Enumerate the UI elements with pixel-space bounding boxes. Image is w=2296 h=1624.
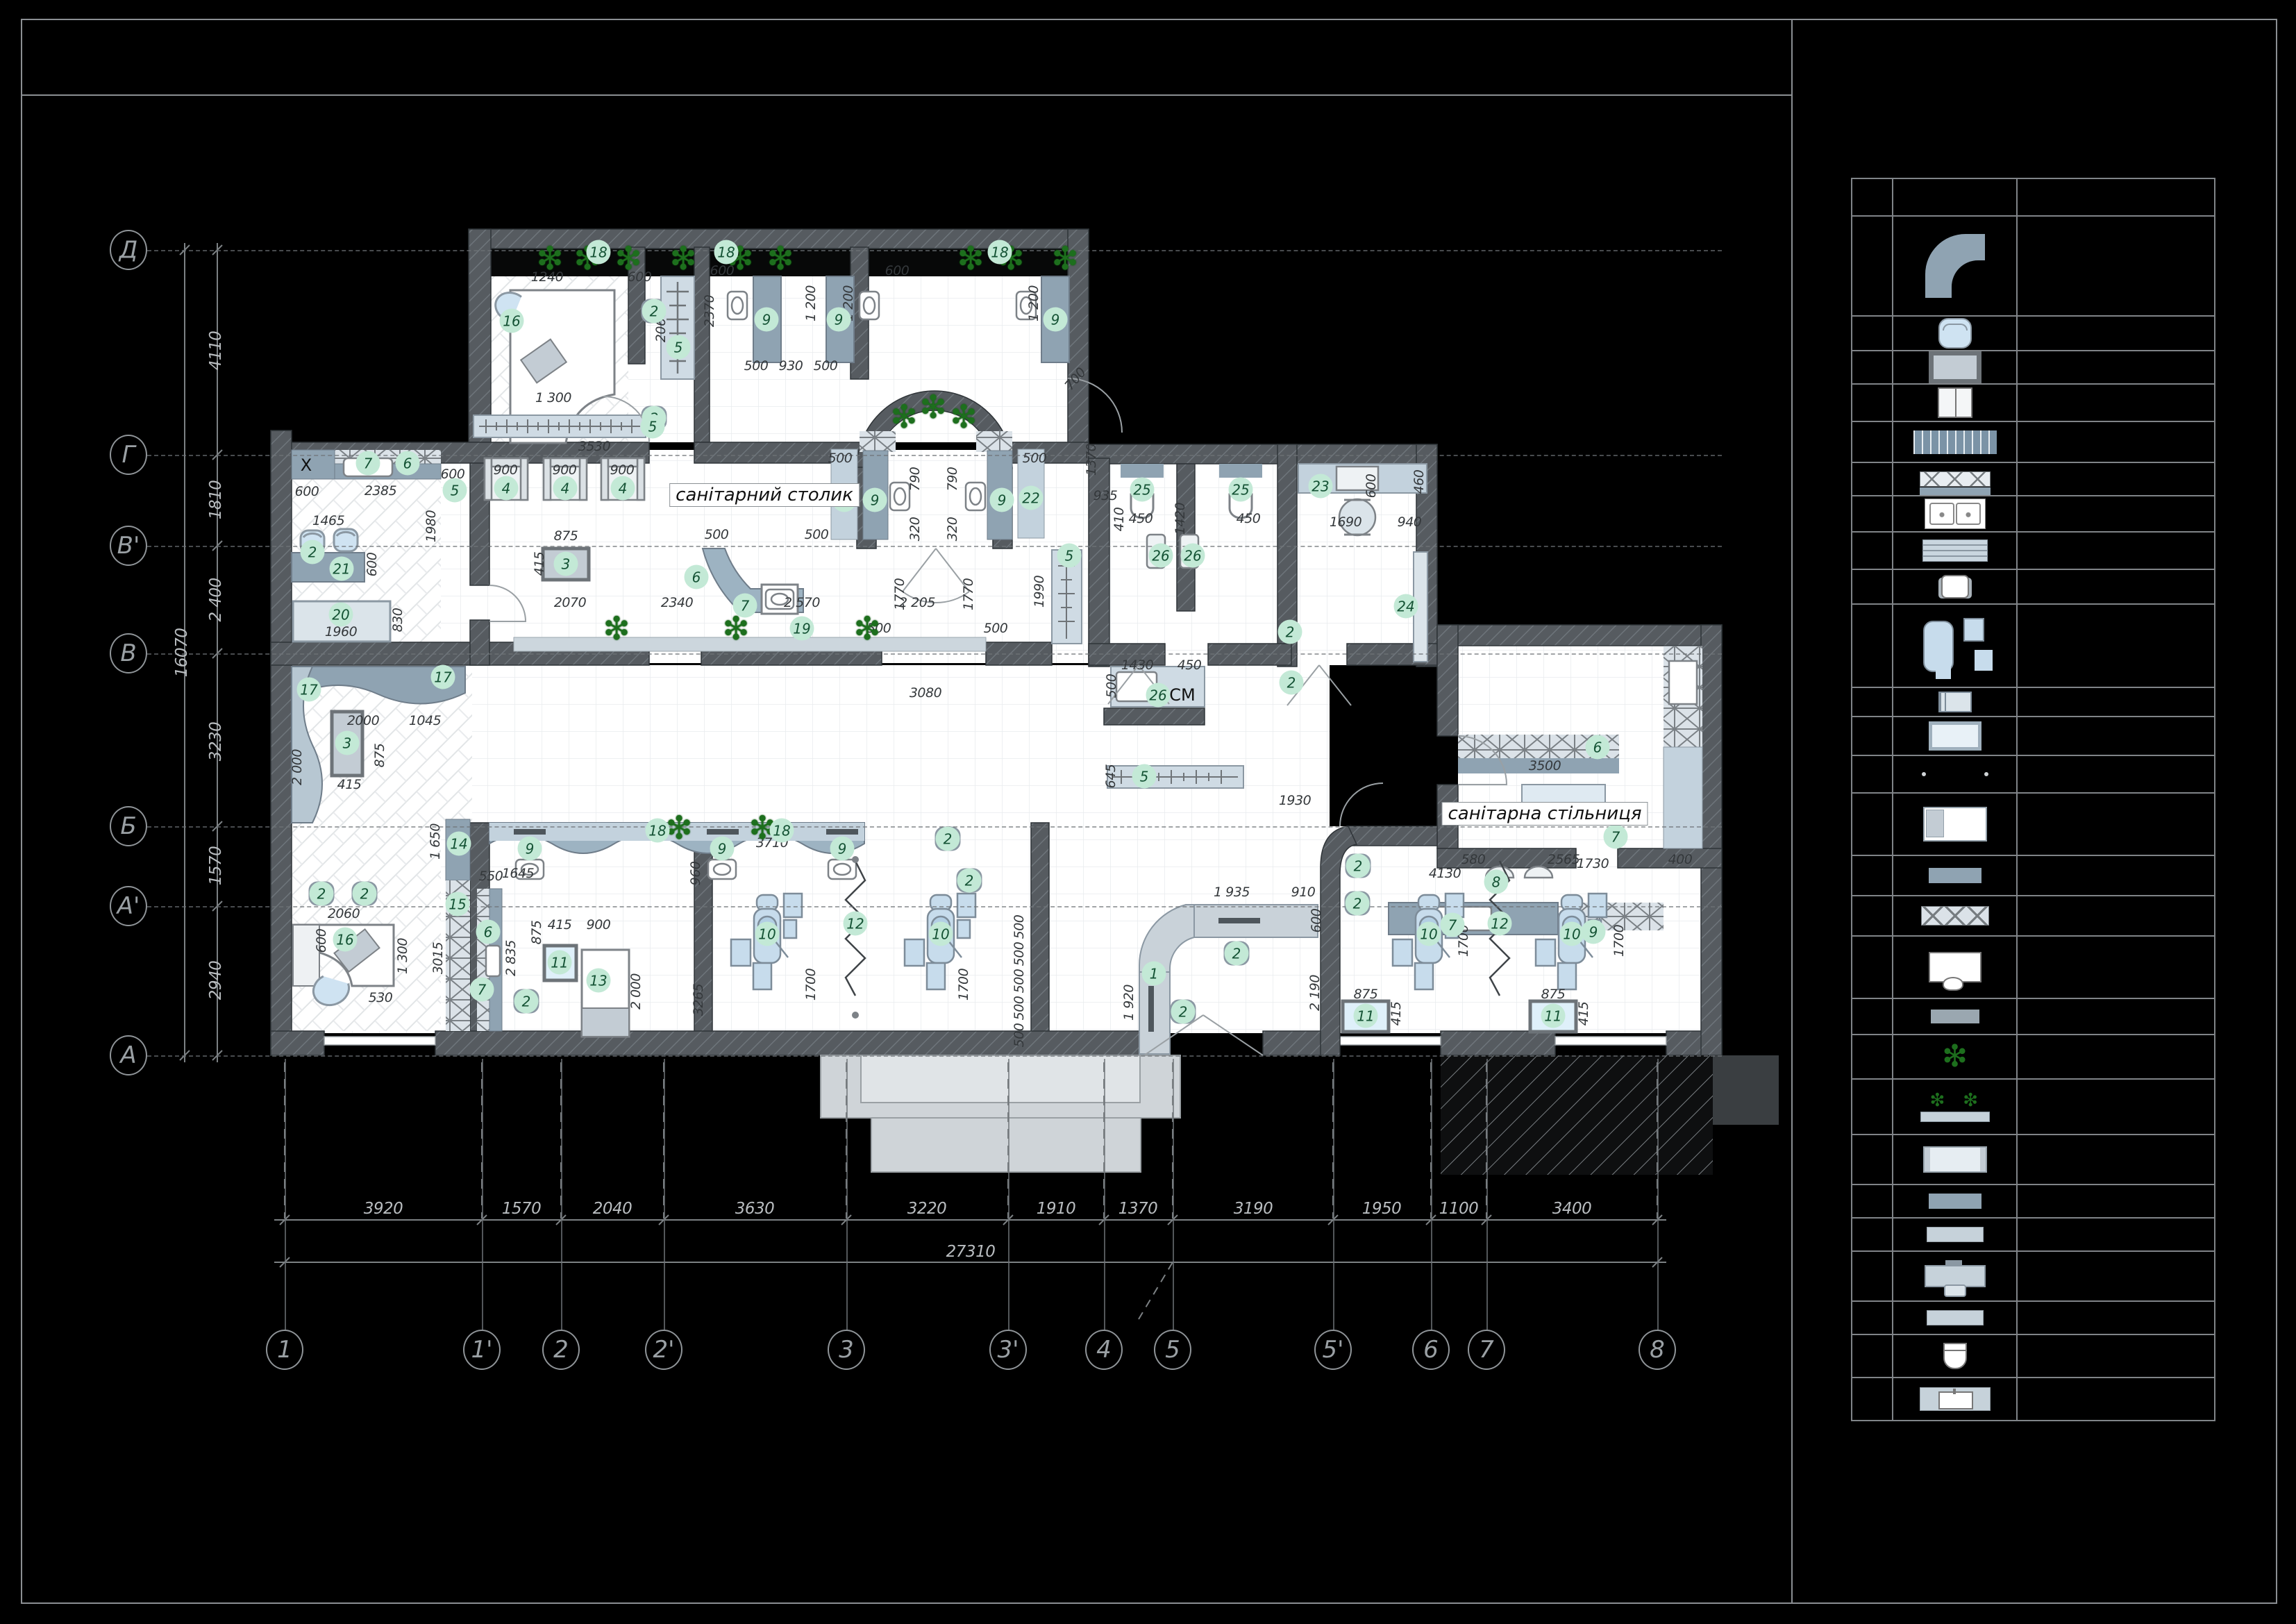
dimension-text: 500 — [1104, 674, 1119, 698]
plant-icon: ❇ — [1052, 242, 1079, 274]
axis-bubble: В' — [110, 526, 147, 566]
dimension-text: 415 — [532, 552, 547, 576]
axis-bubble: Д — [110, 230, 147, 270]
axis-bubble: А — [110, 1035, 147, 1075]
item-number-marker: 9 — [1582, 920, 1606, 944]
legend-symbol-cell — [1892, 999, 2016, 1034]
dimension-text: 500 — [814, 358, 838, 374]
dimension-text: 2060 — [328, 906, 360, 921]
dimension-text: 1 200 — [803, 285, 819, 321]
dimension-text: 1770 — [961, 578, 976, 610]
item-number-marker: 18 — [646, 819, 670, 843]
legend-row — [1852, 895, 2214, 935]
furniture-symbol-icon — [1923, 1146, 1987, 1173]
dimension-text: 4130 — [1429, 866, 1461, 881]
item-number-marker: 2 — [642, 299, 667, 324]
dimension-text: 1100 — [1439, 1200, 1479, 1218]
dimension-text: 27310 — [946, 1243, 996, 1261]
legend-row — [1852, 1078, 2214, 1134]
legend-symbol-cell — [1892, 422, 2016, 462]
dimension-text: 2040 — [593, 1200, 632, 1218]
item-number-marker: 2 — [1278, 620, 1302, 644]
dimension-text: 3265 — [691, 984, 706, 1016]
dimension-text: 500 — [1023, 451, 1047, 466]
legend-number-cell — [1852, 1302, 1892, 1334]
dimension-text: 3400 — [1552, 1200, 1592, 1218]
dimension-text: 600 — [364, 553, 380, 577]
legend-number-cell — [1852, 794, 1892, 855]
item-number-marker: 21 — [330, 557, 354, 581]
dimension-text: 2340 — [661, 595, 693, 610]
item-number-marker: 5 — [1132, 764, 1157, 789]
legend-row — [1852, 495, 2214, 531]
legend-symbol-cell — [1892, 533, 2016, 569]
furniture-symbol-icon — [1925, 234, 1985, 298]
legend-number-cell — [1852, 533, 1892, 569]
plant-icon: ❇ — [891, 401, 918, 433]
legend-row — [1852, 350, 2214, 383]
dimension-text: 1690 — [1330, 514, 1361, 530]
dimension-text: 600 — [1309, 909, 1324, 933]
item-number-marker: 5 — [1057, 544, 1082, 568]
item-number-marker: 17 — [297, 678, 321, 702]
legend-number-cell — [1852, 896, 1892, 935]
furniture-symbol-icon — [1938, 387, 1972, 418]
plant-icon: ❇ — [615, 242, 642, 274]
item-number-marker: 17 — [431, 665, 455, 689]
item-number-marker: 2 — [936, 827, 960, 851]
item-number-marker: 12 — [1488, 912, 1512, 936]
item-number-marker: 2 — [1225, 941, 1249, 966]
axis-bubble: 5' — [1314, 1330, 1352, 1370]
item-number-marker: 3 — [554, 552, 578, 576]
legend-description-cell — [2016, 794, 2213, 855]
legend-description-cell — [2016, 351, 2213, 383]
item-number-marker: 3 — [335, 731, 360, 755]
legend-description-cell — [2016, 496, 2213, 531]
dimension-text: 500 — [744, 358, 769, 374]
legend-row — [1852, 383, 2214, 421]
dimension-text: 600 — [314, 929, 329, 953]
dimension-text: 910 — [1291, 885, 1316, 900]
dimension-text: 1910 — [1037, 1200, 1076, 1218]
dimension-text: 1420 — [1173, 503, 1188, 535]
furniture-symbol-icon — [1929, 868, 1981, 883]
dimension-text: 2370 — [702, 295, 717, 327]
dimension-text: 1 300 — [535, 390, 571, 405]
furniture-symbol-icon — [1938, 692, 1972, 712]
legend-number-cell — [1852, 1035, 1892, 1078]
legend-row — [1852, 1034, 2214, 1078]
dimension-text: 1 935 — [1214, 885, 1250, 900]
dimension-text: 600 — [885, 263, 910, 278]
furniture-symbol-icon — [1921, 906, 1989, 926]
axis-bubble: Б — [110, 806, 147, 846]
furniture-symbol-icon — [1941, 575, 1969, 598]
dimension-text: 1 200 — [1026, 285, 1041, 321]
dimension-text: 3230 — [207, 722, 225, 762]
item-number-marker: 25 — [1130, 478, 1155, 502]
legend-description-cell — [2016, 1378, 2213, 1420]
dimension-text: 3015 — [430, 942, 446, 974]
dimension-text: 500 — [705, 527, 729, 542]
item-number-marker: 24 — [1394, 594, 1418, 619]
furniture-symbol-icon — [1913, 615, 1997, 676]
axis-bubble: 1 — [266, 1330, 303, 1370]
legend-symbol-cell — [1892, 217, 2016, 315]
legend-row — [1852, 716, 2214, 755]
item-number-marker: 18 — [714, 240, 739, 265]
dimension-text: 830 — [390, 608, 405, 633]
legend-row — [1852, 569, 2214, 603]
legend-description-cell — [2016, 1302, 2213, 1334]
furniture-symbol-icon — [1929, 721, 1981, 751]
dimension-text: 320 — [907, 517, 923, 542]
furniture-symbol-icon — [1922, 771, 1988, 778]
legend-number-cell — [1852, 937, 1892, 998]
dimension-text: 2 205 — [899, 595, 935, 610]
furniture-symbol-icon — [1929, 1194, 1981, 1209]
furniture-symbol-icon — [1920, 1387, 1991, 1411]
item-number-marker: 9 — [755, 308, 779, 332]
item-number-marker: 12 — [844, 912, 868, 936]
axis-bubble: 5 — [1154, 1330, 1191, 1370]
item-number-marker: 9 — [830, 837, 855, 861]
dimension-text: 1570 — [207, 846, 225, 886]
dimension-text: 875 — [1354, 987, 1378, 1002]
item-number-marker: 5 — [641, 415, 665, 439]
dimension-text: 2070 — [554, 595, 586, 610]
dimension-text: 930 — [779, 358, 803, 374]
dimension-text: 960 — [688, 862, 703, 886]
dimension-text: 1810 — [207, 480, 225, 520]
legend-header-number — [1852, 179, 1892, 215]
legend-symbol-cell — [1892, 570, 2016, 603]
dimension-text: 2 400 — [207, 578, 225, 621]
drawing-sheet: 11'22'33'455'678 ДГВ'ВБА'А 3920157020403… — [0, 0, 2296, 1624]
plant-icon: ❇ — [767, 242, 794, 274]
item-number-marker: 4 — [494, 476, 519, 501]
item-number-marker: 16 — [333, 928, 358, 952]
dimension-text: 500 — [1012, 996, 1027, 1021]
legend-number-cell — [1852, 1335, 1892, 1377]
plant-icon: ❇ — [666, 812, 693, 844]
item-number-marker: 2 — [1171, 1000, 1196, 1024]
dimension-text: 2 570 — [784, 595, 820, 610]
furniture-symbol-icon — [1922, 539, 1988, 562]
dimension-text: 1700 — [1611, 925, 1627, 957]
item-number-marker: 6 — [476, 920, 501, 944]
axis-bubble: А' — [110, 886, 147, 926]
legend-number-cell — [1852, 856, 1892, 895]
legend-number-cell — [1852, 463, 1892, 495]
legend-symbol-cell — [1892, 1080, 2016, 1134]
dimension-text: 16070 — [173, 628, 191, 678]
dimension-text: 1950 — [1362, 1200, 1402, 1218]
plant-icon: ❇ — [920, 391, 947, 423]
item-number-marker: 11 — [1541, 1004, 1566, 1028]
item-number-marker: 1 — [1142, 962, 1166, 986]
legend-description-cell — [2016, 463, 2213, 495]
dimension-text: 2385 — [364, 483, 396, 499]
legend-table — [1851, 178, 2215, 1421]
item-number-marker: 2 — [1346, 854, 1371, 878]
dimension-text: 500 — [984, 621, 1008, 636]
axis-bubble: Г — [110, 435, 147, 475]
legend-description-cell — [2016, 1035, 2213, 1078]
legend-row — [1852, 315, 2214, 350]
dimension-text: 450 — [1129, 511, 1153, 526]
legend-header-row — [1852, 179, 2214, 215]
legend-description-cell — [2016, 937, 2213, 998]
legend-symbol-cell — [1892, 351, 2016, 383]
legend-row — [1852, 755, 2214, 792]
legend-row — [1852, 1377, 2214, 1420]
dimension-text: 460 — [1411, 470, 1427, 494]
legend-symbol-cell — [1892, 317, 2016, 350]
legend-number-cell — [1852, 756, 1892, 792]
furniture-symbol-icon — [1925, 1265, 1986, 1287]
dimension-text: 1700 — [803, 969, 819, 1001]
legend-row — [1852, 603, 2214, 687]
legend-number-cell — [1852, 422, 1892, 462]
dimension-text: 1645 — [502, 866, 534, 881]
dimension-text: 3500 — [1529, 758, 1561, 773]
legend-description-cell — [2016, 1185, 2213, 1217]
dimension-text: 1430 — [1121, 658, 1153, 673]
dimension-text: 790 — [907, 467, 923, 492]
legend-symbol-cell — [1892, 688, 2016, 716]
item-number-marker: 6 — [685, 565, 709, 589]
legend-number-cell — [1852, 688, 1892, 716]
item-number-marker: 10 — [1560, 922, 1584, 946]
legend-row — [1852, 421, 2214, 462]
legend-number-cell — [1852, 496, 1892, 531]
furniture-symbol-icon — [1927, 1310, 1984, 1325]
legend-description-cell — [2016, 1080, 2213, 1134]
legend-description-cell — [2016, 605, 2213, 687]
item-number-marker: 9 — [710, 837, 735, 861]
legend-description-cell — [2016, 999, 2213, 1034]
axis-bubble: 3 — [828, 1330, 865, 1370]
item-number-marker: 22 — [1019, 486, 1044, 510]
room-label: санітарна стільниця — [1441, 802, 1648, 826]
legend-number-cell — [1852, 1219, 1892, 1250]
dimension-text: 1 920 — [1121, 985, 1137, 1021]
dimension-text: 875 — [372, 744, 387, 768]
item-number-marker: 9 — [518, 837, 542, 861]
dimension-text: 500 — [828, 451, 853, 466]
dimension-text: 2 190 — [1307, 975, 1323, 1011]
plant-icon: ❇ — [603, 612, 630, 644]
item-number-marker: 2 — [1346, 891, 1370, 916]
dimension-text: 645 — [1103, 764, 1118, 789]
legend-symbol-cell — [1892, 1302, 2016, 1334]
dimension-text: 3220 — [907, 1200, 947, 1218]
legend-symbol-cell — [1892, 496, 2016, 531]
plant-icon: ❇ — [957, 242, 984, 274]
legend-symbol-cell — [1892, 1185, 2016, 1217]
item-number-marker: 5 — [443, 478, 467, 503]
dimension-text: 1700 — [956, 969, 971, 1001]
legend-symbol-cell — [1892, 1378, 2016, 1420]
axis-bubble: 7 — [1468, 1330, 1505, 1370]
dimension-text: 320 — [945, 517, 960, 542]
item-number-marker: 7 — [356, 451, 380, 476]
dimension-text: 500 — [1012, 915, 1027, 939]
legend-description-cell — [2016, 688, 2213, 716]
item-number-marker: 2 — [1280, 671, 1304, 695]
legend-description-cell — [2016, 317, 2213, 350]
legend-row — [1852, 531, 2214, 569]
dimension-text: 1980 — [424, 510, 439, 542]
legend-symbol-cell — [1892, 1219, 2016, 1250]
item-number-marker: 5 — [667, 335, 691, 360]
legend-number-cell — [1852, 385, 1892, 421]
dimension-text: 3190 — [1234, 1200, 1273, 1218]
furniture-symbol-icon — [1929, 952, 1981, 982]
item-number-marker: 13 — [587, 969, 611, 993]
dimension-text: 600 — [1364, 474, 1379, 499]
dimension-text: 4110 — [207, 331, 225, 371]
legend-symbol-cell — [1892, 605, 2016, 687]
axis-bubble: 6 — [1412, 1330, 1450, 1370]
legend-symbol-cell — [1892, 1252, 2016, 1300]
room-label: X — [295, 455, 317, 476]
axis-bubble: В — [110, 633, 147, 673]
legend-number-cell — [1852, 1378, 1892, 1420]
legend-description-cell — [2016, 1219, 2213, 1250]
legend-description-cell — [2016, 1252, 2213, 1300]
legend-number-cell — [1852, 217, 1892, 315]
item-number-marker: 2 — [353, 882, 377, 906]
dimension-text: 1370 — [1118, 1200, 1158, 1218]
legend-row — [1852, 1184, 2214, 1217]
dimension-text: 1990 — [1032, 576, 1047, 608]
room-label: санітарний столик — [669, 483, 860, 507]
dimension-text: 2 000 — [290, 749, 305, 785]
item-number-marker: 11 — [1354, 1004, 1378, 1028]
axis-bubble: 3' — [989, 1330, 1027, 1370]
dimension-text: 2940 — [207, 961, 225, 1001]
legend-symbol-cell — [1892, 756, 2016, 792]
legend-row — [1852, 1334, 2214, 1377]
legend-symbol-cell — [1892, 463, 2016, 495]
legend-description-cell — [2016, 570, 2213, 603]
item-number-marker: 2 — [310, 882, 334, 906]
dimension-text: 2 000 — [628, 973, 644, 1010]
dimension-text: 500 — [1012, 1023, 1027, 1048]
dimension-text: 400 — [1668, 852, 1693, 867]
dimension-text: 1570 — [502, 1200, 542, 1218]
item-number-marker: 20 — [329, 603, 353, 627]
dimension-text: 3080 — [910, 685, 941, 701]
legend-header-description — [2016, 179, 2213, 215]
item-number-marker: 10 — [1417, 922, 1441, 946]
item-number-marker: 11 — [548, 951, 572, 975]
legend-symbol-cell — [1892, 1035, 2016, 1078]
item-number-marker: 7 — [470, 978, 494, 1002]
item-number-marker: 9 — [827, 308, 851, 332]
item-number-marker: 4 — [553, 476, 578, 501]
legend-row — [1852, 687, 2214, 716]
dimension-text: 2 835 — [503, 940, 519, 976]
dimension-text: 935 — [1093, 488, 1118, 503]
item-number-marker: 7 — [733, 594, 757, 618]
legend-symbol-cell — [1892, 1135, 2016, 1184]
plant-icon: ❇ — [854, 612, 881, 644]
legend-row — [1852, 792, 2214, 855]
legend-description-cell — [2016, 217, 2213, 315]
dimension-text: 500 — [1012, 942, 1027, 966]
plant-icon: ❇ — [537, 242, 564, 274]
item-number-marker: 2 — [957, 869, 982, 893]
legend-number-cell — [1852, 1185, 1892, 1217]
item-number-marker: 18 — [587, 240, 611, 265]
legend-description-cell — [2016, 1335, 2213, 1377]
legend-number-cell — [1852, 570, 1892, 603]
axis-bubble: 2 — [542, 1330, 580, 1370]
legend-description-cell — [2016, 856, 2213, 895]
dimension-text: 530 — [369, 990, 393, 1005]
item-number-marker: 16 — [500, 309, 524, 333]
legend-number-cell — [1852, 717, 1892, 755]
legend-row — [1852, 1300, 2214, 1334]
dimension-text: 1370 — [1084, 444, 1099, 476]
legend-number-cell — [1852, 999, 1892, 1034]
legend-description-cell — [2016, 756, 2213, 792]
dimension-text: 415 — [337, 777, 362, 792]
dimension-text: 415 — [1576, 1002, 1591, 1026]
dimension-text: 415 — [1389, 1002, 1404, 1026]
dimension-text: 1045 — [409, 713, 441, 728]
legend-row — [1852, 1250, 2214, 1300]
dimension-text: 3920 — [364, 1200, 403, 1218]
furniture-symbol-icon — [1920, 1091, 1990, 1122]
dimension-text: 550 — [479, 869, 503, 884]
legend-symbol-cell — [1892, 717, 2016, 755]
dimension-text: 3530 — [578, 439, 610, 454]
dimension-text: 3630 — [735, 1200, 775, 1218]
dimension-text: 500 — [1012, 969, 1027, 994]
axis-bubble: 2' — [645, 1330, 682, 1370]
dimension-text: 875 — [554, 528, 578, 544]
legend-description-cell — [2016, 385, 2213, 421]
legend-description-cell — [2016, 717, 2213, 755]
legend-number-cell — [1852, 317, 1892, 350]
item-number-marker: 19 — [790, 617, 814, 641]
furniture-symbol-icon — [1927, 1227, 1984, 1242]
legend-row — [1852, 935, 2214, 998]
legend-row — [1852, 998, 2214, 1034]
dimension-text: 410 — [1112, 508, 1127, 532]
plant-icon: ❇ — [950, 401, 978, 433]
furniture-symbol-icon — [1920, 471, 1991, 487]
dimension-text: 600 — [295, 484, 319, 499]
legend-row — [1852, 1217, 2214, 1250]
furniture-symbol-icon — [1913, 430, 1997, 454]
item-number-marker: 18 — [770, 819, 794, 843]
item-number-marker: 6 — [396, 451, 420, 476]
legend-description-cell — [2016, 1135, 2213, 1184]
entrance-porch — [821, 1055, 1779, 1175]
dimension-text: 1930 — [1279, 793, 1311, 808]
dimension-text: 500 — [805, 527, 829, 542]
furniture-symbol-icon — [1938, 318, 1972, 349]
legend-number-cell — [1852, 605, 1892, 687]
item-number-marker: 14 — [447, 832, 471, 856]
axis-bubble: 8 — [1639, 1330, 1676, 1370]
